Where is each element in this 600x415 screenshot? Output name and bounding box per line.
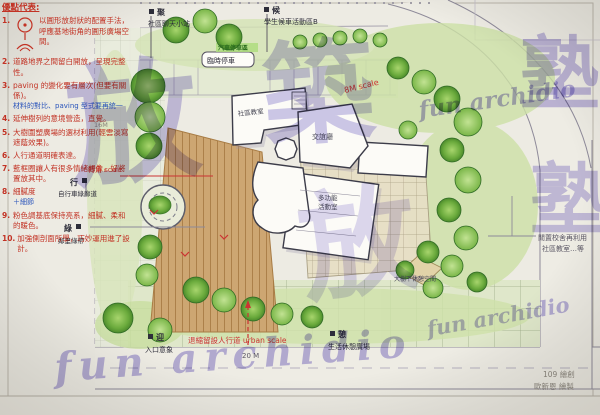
note-item-6: 6. 人行通道明確表達。 [2,151,130,161]
note-item-5: 5. 大樹圍塑廣場的選材利用(輕雲淡寫遮蔭效果)。 [2,128,130,148]
note-item-4: 4. 延伸樹列的意境營造，直覺。 [2,114,130,124]
note-item-3-sub: 材料的對比、paving 型式要再統一 [13,102,130,111]
note-item-8-sub: ＋細節 [13,198,130,207]
note-item-1: 1. 以圓形放射狀的配置手法，呼應基地街角的圓形廣場空間。 [2,16,130,54]
margin-notes: 優點代表: 1. 以圓形放射狀的配置手法，呼應基地街角的圓形廣場空間。 2. 道… [2,3,130,257]
note-item-8: 8. 細膩度 ＋細節 [2,187,130,208]
notes-title: 優點代表: [2,3,130,14]
radial-plaza-sketch-icon [13,16,37,54]
note-item-3: 3. paving 的變化要有層次(但要有關係)。 材料的對比、paving 型… [2,81,130,112]
note-item-7: 7. 藍框圈讓人有很多情緒想像，好將置放其中。 [2,164,130,184]
note-item-10: 10. 加強側剖面所學，巧妙運用進了設計。 [2,234,130,254]
note-item-2: 2. 道路地界之間留白開放，呈現完整性。 [2,57,130,77]
note-item-9: 9. 粉色調基底保持亮系，細膩、柔和的暖色。 [2,211,130,231]
photographed-site-plan-sheet: { "notes": { "title": "優點代表:", "items": … [0,0,600,415]
